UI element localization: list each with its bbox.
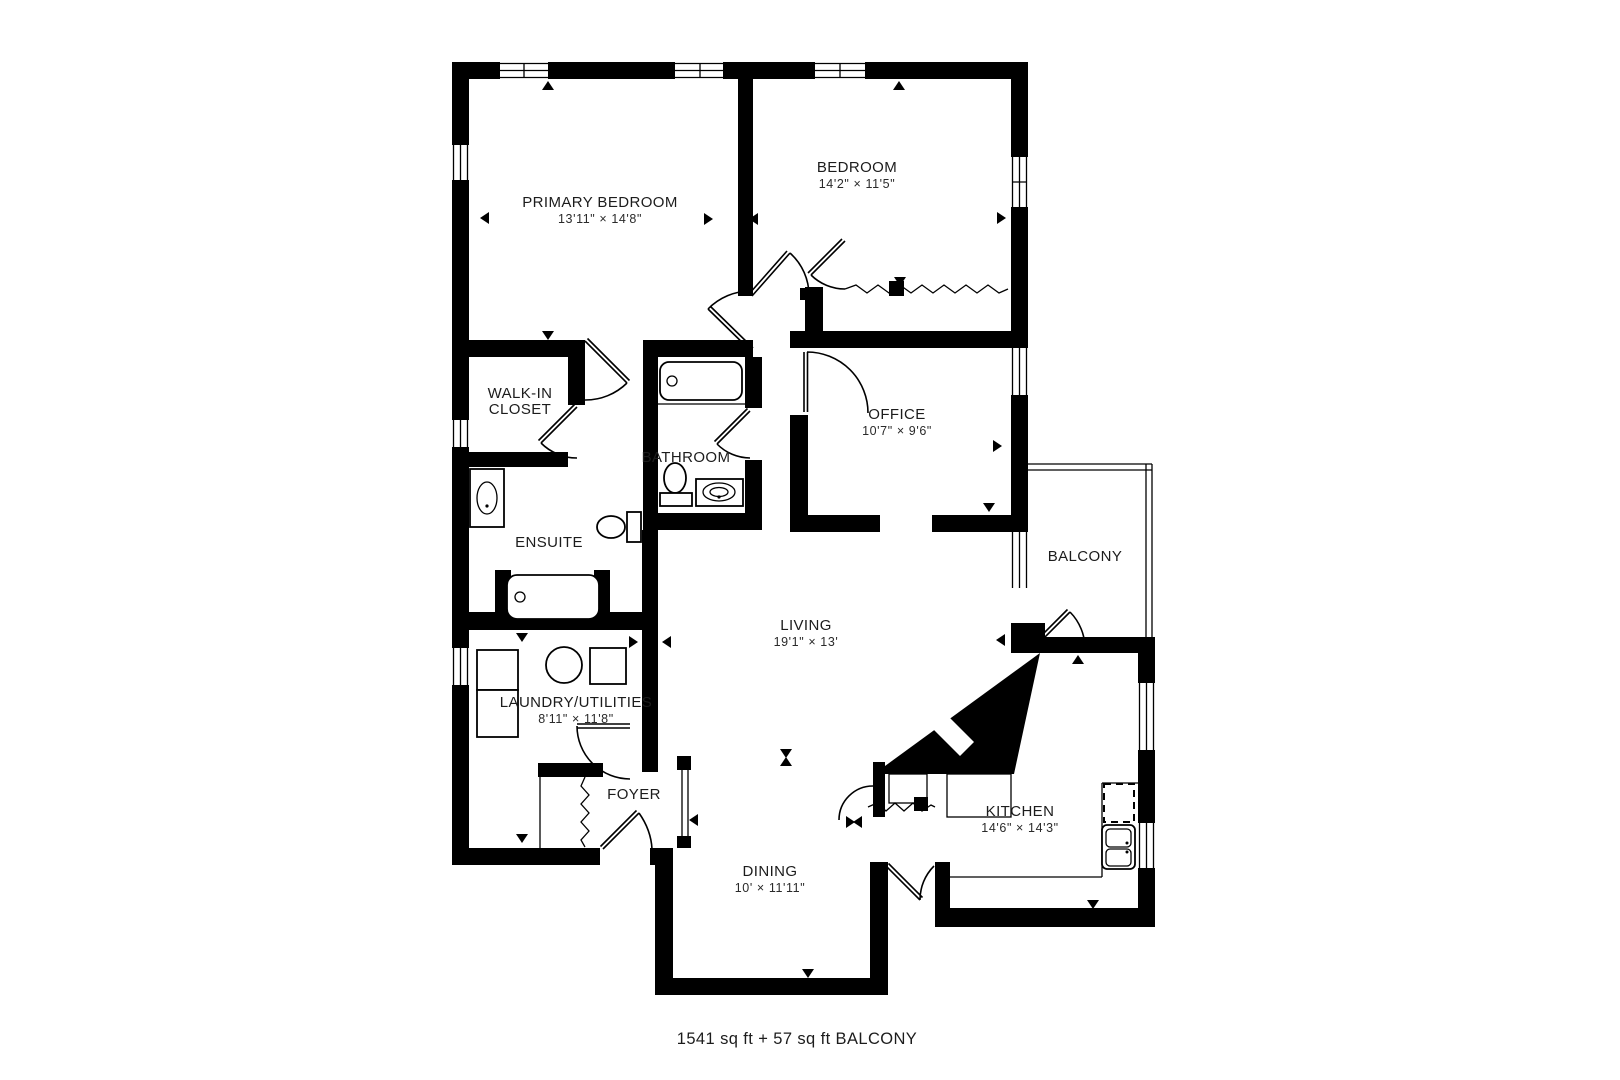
area-summary: 1541 sq ft + 57 sq ft BALCONY bbox=[677, 1030, 917, 1048]
room-dims-dining: 10' × 11'11" bbox=[735, 881, 806, 895]
ensuite-sink bbox=[470, 469, 504, 527]
fridge bbox=[1104, 784, 1134, 822]
room-dims-office: 10'7" × 9'6" bbox=[862, 424, 932, 438]
room-label-ensuite: ENSUITE bbox=[515, 534, 583, 551]
room-dims-kitchen: 14'6" × 14'3" bbox=[981, 821, 1058, 835]
bathroom-toilet bbox=[660, 463, 692, 506]
room-label-walkin-line1: WALK-IN bbox=[488, 385, 553, 402]
bathroom-sink bbox=[696, 479, 743, 506]
room-dims-laundry: 8'11" × 11'8" bbox=[538, 712, 614, 726]
kitchen-sink bbox=[1102, 825, 1135, 869]
closet-rod-bedroom bbox=[845, 285, 1008, 293]
room-label-bathroom: BATHROOM bbox=[642, 449, 731, 466]
room-label-primary-bedroom: PRIMARY BEDROOM bbox=[522, 194, 677, 211]
room-label-laundry: LAUNDRY/UTILITIES bbox=[500, 694, 652, 711]
floor-plan-canvas: PRIMARY BEDROOM 13'11" × 14'8" BEDROOM 1… bbox=[0, 0, 1620, 1080]
room-dims-living: 19'1" × 13' bbox=[774, 635, 839, 649]
utility-unit bbox=[477, 650, 518, 690]
room-dims-bedroom: 14'2" × 11'5" bbox=[819, 177, 895, 191]
bathroom-tub bbox=[658, 362, 745, 404]
washer bbox=[546, 647, 582, 683]
floor-plan-page: PRIMARY BEDROOM 13'11" × 14'8" BEDROOM 1… bbox=[0, 0, 1620, 1080]
room-label-foyer: FOYER bbox=[607, 786, 661, 803]
room-label-balcony: BALCONY bbox=[1048, 548, 1123, 565]
ensuite-toilet bbox=[597, 512, 641, 542]
closet-rod-foyer bbox=[581, 777, 589, 847]
dryer bbox=[590, 648, 626, 684]
room-label-living: LIVING bbox=[780, 617, 832, 634]
ensuite-tub bbox=[507, 575, 599, 619]
room-label-bedroom: BEDROOM bbox=[817, 159, 897, 176]
room-label-kitchen: KITCHEN bbox=[986, 803, 1055, 820]
room-label-dining: DINING bbox=[743, 863, 798, 880]
room-dims-primary-bedroom: 13'11" × 14'8" bbox=[558, 212, 642, 226]
room-label-office: OFFICE bbox=[868, 406, 925, 423]
fireplace bbox=[874, 653, 1040, 774]
room-label-walkin-line2: CLOSET bbox=[489, 401, 551, 418]
